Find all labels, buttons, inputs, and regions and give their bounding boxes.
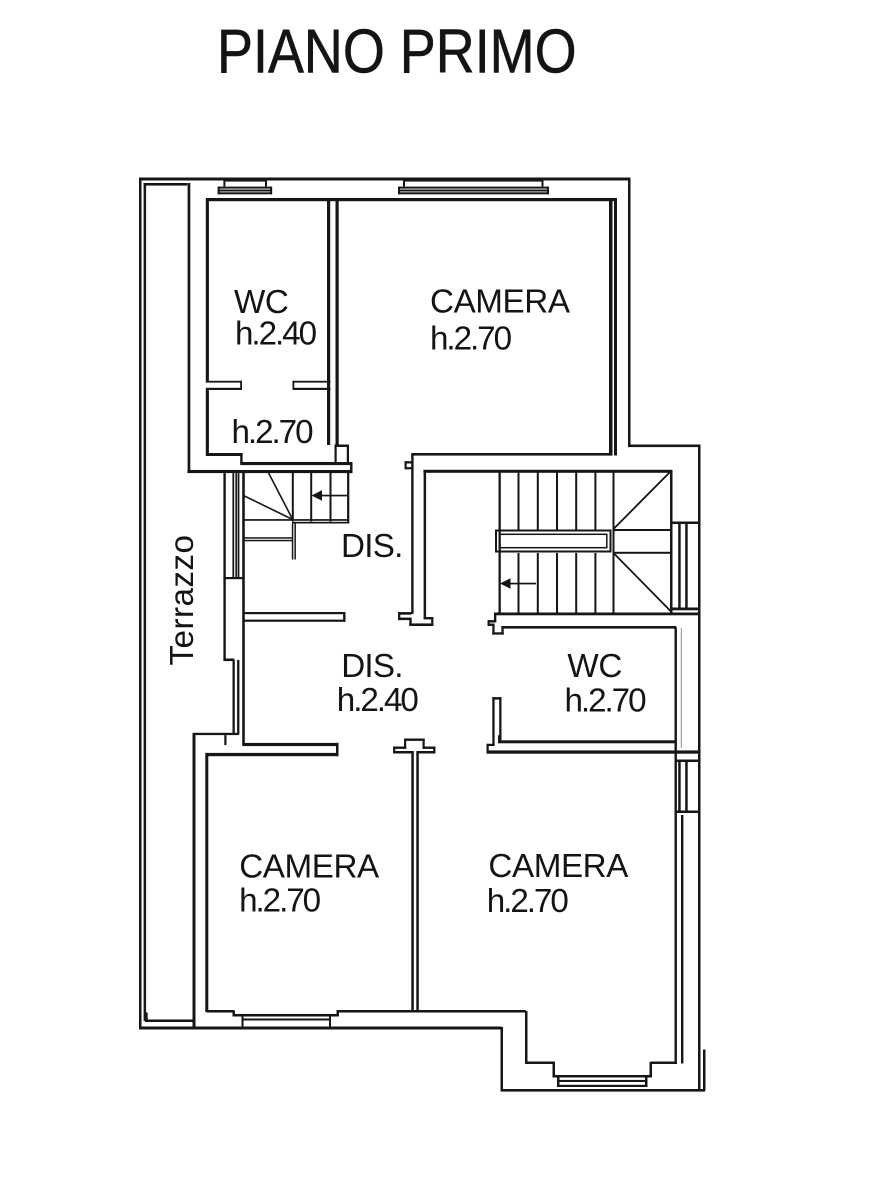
svg-text:h.2.70: h.2.70	[430, 321, 512, 358]
svg-text:h.2.70: h.2.70	[565, 682, 647, 719]
svg-text:DIS.: DIS.	[341, 648, 403, 685]
svg-text:CAMERA: CAMERA	[239, 849, 380, 886]
svg-text:h.2.70: h.2.70	[487, 883, 569, 920]
svg-text:Terrazzo: Terrazzo	[164, 535, 201, 666]
svg-text:h.2.70: h.2.70	[239, 883, 321, 920]
svg-text:WC: WC	[567, 648, 622, 685]
svg-text:h.2.40: h.2.40	[235, 316, 317, 353]
svg-text:CAMERA: CAMERA	[430, 284, 571, 321]
svg-text:DIS.: DIS.	[341, 528, 403, 565]
svg-text:CAMERA: CAMERA	[488, 848, 629, 885]
svg-text:h.2.40: h.2.40	[337, 682, 419, 719]
svg-text:PIANO PRIMO: PIANO PRIMO	[217, 17, 577, 86]
svg-text:h.2.70: h.2.70	[232, 414, 314, 451]
